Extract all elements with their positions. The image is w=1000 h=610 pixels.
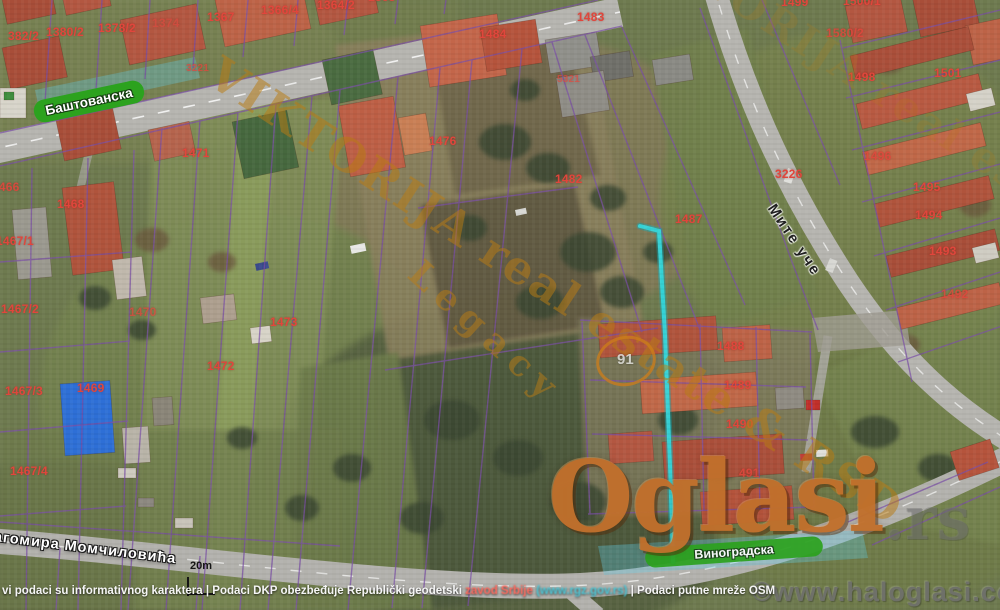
parcel-label: 1367 <box>207 11 235 23</box>
parcel-label: 1500/1 <box>843 0 881 7</box>
parcel-label: 5321 <box>557 75 580 85</box>
parcel-label: 1493 <box>929 245 957 257</box>
parcel-label: 1488 <box>717 340 745 352</box>
parcel-label: 1374 <box>152 17 180 29</box>
parcel-label: 1494 <box>915 209 943 221</box>
street-label: Виноградска <box>694 542 774 562</box>
map-canvas[interactable]: 382/21380/21378/2137413671366/41364/2136… <box>0 0 1000 610</box>
parcel-label: 1366/4 <box>261 4 299 16</box>
parcel-label: 1489 <box>724 379 752 391</box>
parcel-label: 1378/2 <box>98 22 136 34</box>
parcel-label: 3221 <box>186 64 209 74</box>
parcel-label: 1467/1 <box>0 235 34 247</box>
parcel-label: 1467/2 <box>1 303 39 315</box>
parcel-label: 1476 <box>429 135 457 147</box>
parcel-label: 1495 <box>913 181 941 193</box>
parcel-label: 3226 <box>775 168 803 180</box>
parcel-label: 1467/3 <box>5 385 43 397</box>
parcel-label: 1492 <box>941 288 969 300</box>
parcel-label: 1468 <box>57 198 85 210</box>
map-attribution: vi podaci su informativnog karaktera | P… <box>2 585 775 597</box>
parcel-label: 491 <box>739 467 760 479</box>
parcel-label: 1470 <box>129 306 157 318</box>
parcel-label: 1473 <box>270 316 298 328</box>
parcel-label: 1484 <box>479 28 507 40</box>
parcel-label: 1490 <box>726 418 754 430</box>
parcel-label: 1363 <box>368 0 396 3</box>
parcel-label: 1471 <box>182 147 210 159</box>
attribution-authority: zavod Srbije <box>465 585 533 597</box>
parcel-label: 1487 <box>675 213 703 225</box>
parcel-label: 1580/2 <box>826 27 864 39</box>
parcel-label: 1467/4 <box>10 465 48 477</box>
scale-bar-label: 20m <box>190 560 212 572</box>
parcel-label: 1364/2 <box>317 0 355 11</box>
attribution-text: | Podaci putne mreže OSM <box>627 585 775 597</box>
parcel-label: 1472 <box>207 360 235 372</box>
parcel-label: 382/2 <box>8 30 39 42</box>
parcel-labels-layer: 382/21380/21378/2137413671366/41364/2136… <box>0 0 1000 610</box>
parcel-label: 1466 <box>0 181 20 193</box>
attribution-link[interactable]: (www.rgz.gov.rs) <box>536 585 627 597</box>
parcel-label: 1380/2 <box>46 26 84 38</box>
parcel-label: 1501 <box>934 67 962 79</box>
parcel-label: 1469 <box>77 382 105 394</box>
parcel-label: 1482 <box>555 173 583 185</box>
parcel-label: 1483 <box>577 11 605 23</box>
parcel-label: 1499 <box>781 0 809 8</box>
parcel-label: 1498 <box>848 71 876 83</box>
attribution-text: vi podaci su informativnog karaktera | P… <box>2 585 465 597</box>
parcel-label: 1496 <box>864 150 892 162</box>
